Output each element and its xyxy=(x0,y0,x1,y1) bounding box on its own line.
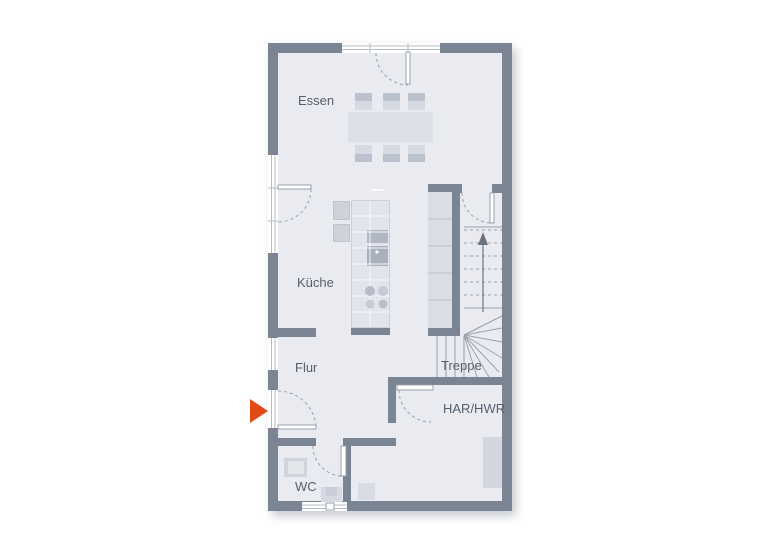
wall-har-north xyxy=(388,377,503,385)
room-label-treppe: Treppe xyxy=(441,359,482,373)
utility-appliance xyxy=(483,437,502,488)
wall-stairwell-top-right xyxy=(492,184,503,193)
window-wc-bottom xyxy=(302,502,347,511)
dining-chair xyxy=(383,93,400,110)
window-left-terrace-door xyxy=(268,155,278,253)
dining-chair xyxy=(383,145,400,162)
window-top xyxy=(342,43,440,53)
kitchen-wall-cabinet xyxy=(333,224,350,242)
wall-wc-north-west xyxy=(278,438,316,446)
window-left-flur xyxy=(268,338,278,370)
utility-shelf xyxy=(358,483,375,500)
entrance-arrow-icon xyxy=(250,399,268,423)
tall-cabinet xyxy=(428,192,452,328)
dining-chair xyxy=(408,93,425,110)
room-label-flur: Flur xyxy=(295,361,317,375)
kitchen-wall-cabinet xyxy=(333,201,350,220)
floor-plan-canvas: Essen Küche Flur Treppe HAR/HWR WC xyxy=(0,0,768,560)
entrance-door-band xyxy=(268,390,278,428)
room-label-har-hwr: HAR/HWR xyxy=(443,402,505,416)
wall-kueche-flur-stub xyxy=(278,328,316,337)
wc-sink-basin xyxy=(288,461,304,474)
dining-chair xyxy=(408,145,425,162)
room-label-kueche: Küche xyxy=(297,276,334,290)
dining-chair xyxy=(355,93,372,110)
dining-table xyxy=(348,112,433,142)
wall-wc-east xyxy=(343,438,351,502)
toilet-seat xyxy=(326,487,337,496)
room-label-wc: WC xyxy=(295,480,317,494)
oven xyxy=(367,246,388,266)
microwave xyxy=(367,230,388,243)
wall-har-west xyxy=(388,377,396,423)
room-label-essen: Essen xyxy=(298,94,334,108)
wall-cabinet-bottom xyxy=(428,327,460,336)
dining-chair xyxy=(355,145,372,162)
wall-cabinet-right xyxy=(452,192,460,335)
